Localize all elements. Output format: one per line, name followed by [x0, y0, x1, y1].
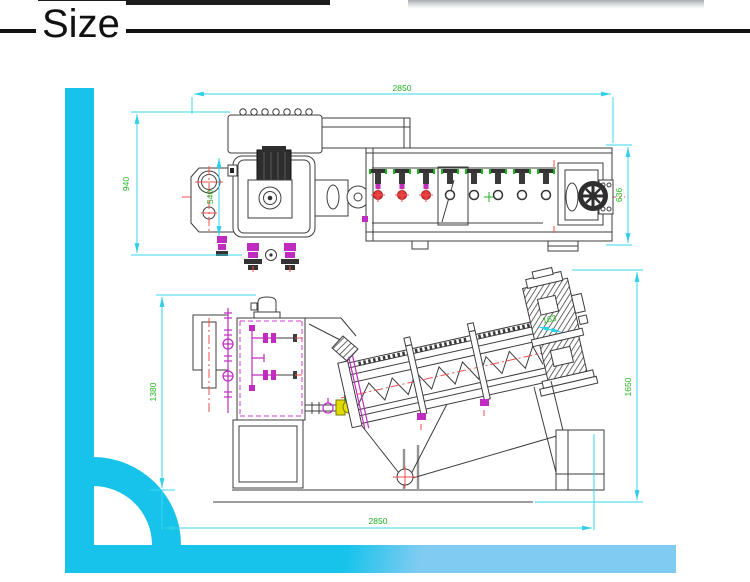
page: Size [0, 0, 750, 582]
gearbox-top [228, 146, 315, 237]
drain-fittings-top [216, 236, 299, 272]
technical-drawing: 2850 940 540 636 [0, 0, 750, 582]
page-title: Size [36, 1, 126, 47]
dim-side-feed-height: 1380 [148, 382, 158, 401]
cable-gland-circles [240, 109, 312, 115]
dim-top-width: 940 [121, 177, 131, 191]
dim-top-end-width: 636 [614, 188, 624, 202]
feed-tank [193, 297, 358, 420]
dim-top-hub: 540 [205, 190, 215, 204]
side-view: 1380 1650 2850 163 [148, 262, 643, 530]
top-view: 2850 940 540 636 [121, 83, 632, 272]
drive-motor [514, 262, 602, 396]
dim-side-base-length: 2850 [369, 516, 388, 526]
dim-top-length: 2850 [393, 83, 412, 93]
dim-side-drive-height: 1650 [623, 377, 633, 396]
